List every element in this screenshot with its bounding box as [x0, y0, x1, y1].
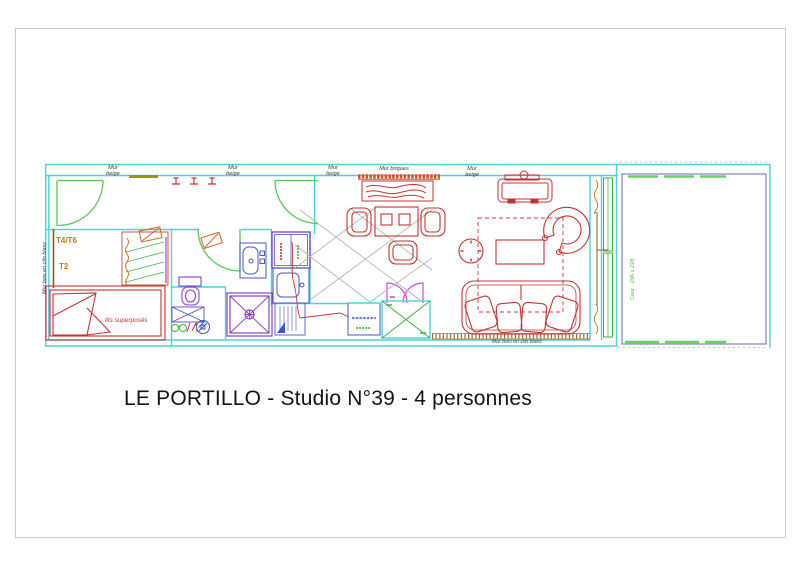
- wall-label-line: beige: [99, 171, 127, 177]
- court-edge-dashes: [618, 162, 768, 348]
- wall-label-beige-2: Mur beige: [219, 165, 247, 177]
- shower: [227, 293, 272, 336]
- hall-door: [275, 181, 318, 224]
- wardrobe: [122, 232, 168, 285]
- sofa: [462, 281, 580, 334]
- bunk-beds-label: lits superposés: [105, 317, 148, 324]
- towel-rings: [172, 325, 187, 332]
- bunk-bed: [46, 286, 165, 340]
- wall-label-line: Mur bois en clin blanc: [486, 340, 548, 346]
- extractor-fan: [197, 321, 210, 334]
- water-heater: [201, 232, 222, 248]
- washbasin: [240, 243, 266, 278]
- coffee-table: [496, 240, 544, 264]
- wall-label-beige-4: Mur beige: [458, 166, 486, 178]
- sloped-ceiling-grid: [295, 208, 432, 302]
- wall-label-line: beige: [219, 171, 247, 177]
- armchair: [543, 207, 590, 254]
- wall-label-line: Mur briques: [370, 166, 418, 172]
- laundry-box: [172, 307, 204, 322]
- kitchen-sink: [273, 268, 309, 303]
- toilet: [179, 277, 201, 305]
- window-lower: [604, 253, 613, 337]
- coat-hooks: [172, 178, 216, 184]
- floor-plan-page: Mur beige Mur beige Mur beige Mur brique…: [0, 0, 800, 565]
- mark-red: [187, 323, 197, 332]
- window-upper: [604, 178, 613, 251]
- kitchen-cabinet: [272, 232, 310, 268]
- curtain-rail: [597, 212, 608, 306]
- kitchen-lower-unit: [275, 303, 305, 335]
- storage-chest: [382, 301, 430, 338]
- courtyard: [622, 174, 766, 344]
- entrance-door: [57, 181, 103, 227]
- unit-type-label-t2: T2: [59, 262, 68, 271]
- floor-plan-drawing: [0, 0, 800, 565]
- wall-label-line: beige: [319, 171, 347, 177]
- annotated-box: [348, 303, 380, 335]
- wall-label-beige-3: Mur beige: [319, 165, 347, 177]
- bathroom-door: [198, 229, 240, 271]
- wall-label-bois-bottom: Mur bois en clin blanc: [486, 340, 548, 346]
- sideboard: [362, 181, 433, 201]
- wall-label-briques: Mur briques: [370, 166, 418, 172]
- round-table: [459, 239, 483, 263]
- plan-title: LE PORTILLO - Studio N°39 - 4 personnes: [124, 387, 532, 411]
- wall-label-line: beige: [458, 172, 486, 178]
- unit-type-label-t4t6: T4/T6: [56, 236, 77, 245]
- courtyard-label: Cour : 296 x 228: [630, 259, 636, 300]
- brick-wall-hatch: [358, 177, 440, 180]
- wall-label-bois-left: Mur bois en clin blanc: [42, 242, 48, 294]
- wall-label-beige-1: Mur beige: [99, 165, 127, 177]
